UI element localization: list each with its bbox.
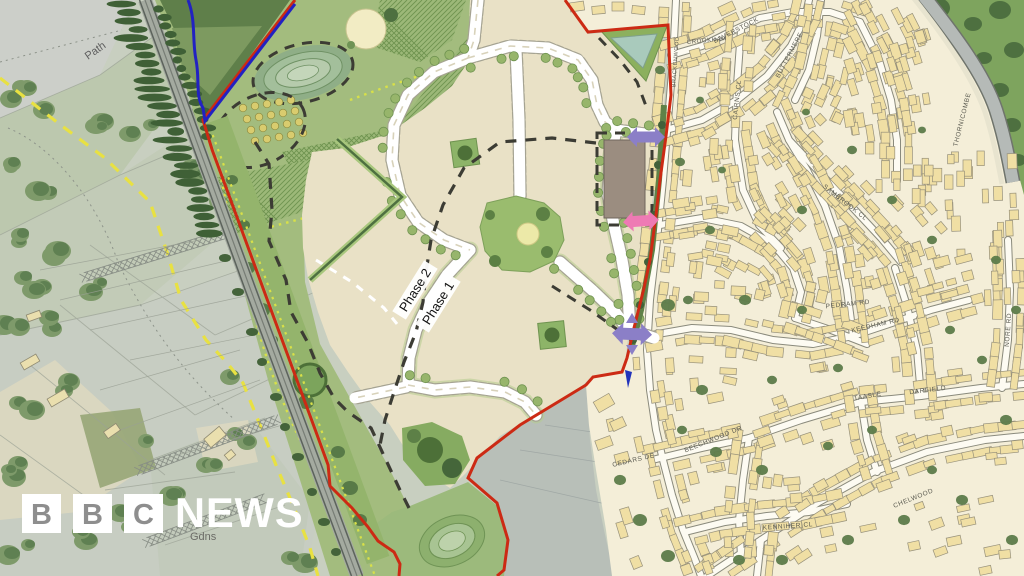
svg-text:B: B [31, 499, 52, 531]
svg-text:C: C [133, 499, 154, 531]
svg-text:NEWS: NEWS [175, 489, 304, 536]
svg-text:B: B [82, 499, 103, 531]
